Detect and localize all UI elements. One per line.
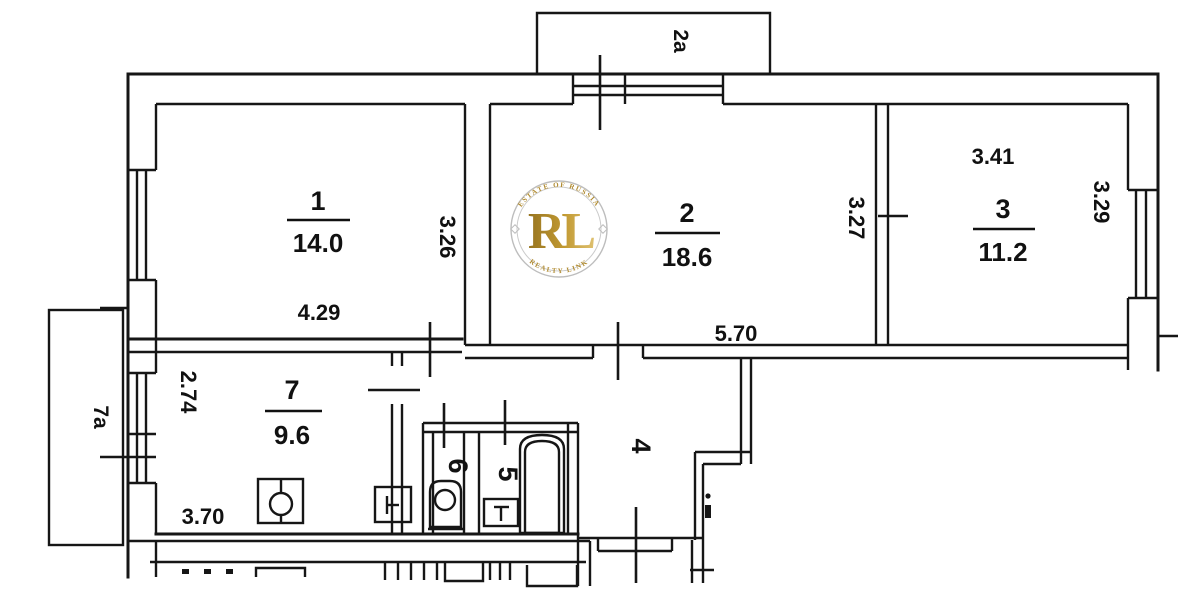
windows: [100, 55, 1158, 483]
balcony-2a: 2a: [537, 13, 770, 74]
floor-plan: 2a 7a: [0, 0, 1192, 600]
room-labels: 1 14.0 2 18.6 3 11.2 7 9.6 4 5 6: [265, 186, 1035, 482]
room-1-number: 1: [310, 186, 325, 216]
dim-room2-width: 5.70: [715, 321, 758, 346]
dim-room1-width: 4.29: [298, 300, 341, 325]
room-3-area: 11.2: [978, 237, 1027, 267]
watermark-initials: RL: [528, 203, 595, 260]
closet-door-mark: [705, 505, 711, 518]
dim-room7-depth: 2.74: [176, 371, 201, 415]
bathtub-icon: [520, 435, 564, 533]
balcony-7a-label: 7a: [89, 405, 112, 429]
room1-window: [128, 170, 156, 280]
room-1-label: 1 14.0: [287, 186, 350, 258]
stove-icon: [258, 479, 303, 523]
doors: [368, 322, 711, 583]
dim-room3-width: 3.41: [972, 144, 1015, 169]
interior-walls: [128, 104, 1128, 540]
room-3-number: 3: [995, 194, 1010, 224]
dim-room7-width: 3.70: [182, 504, 225, 529]
room-2-area: 18.6: [662, 242, 713, 272]
room-7-number: 7: [284, 375, 299, 405]
room-4-number: 4: [626, 438, 656, 453]
room-7-area: 9.6: [274, 420, 310, 450]
bottom-walls: [128, 534, 714, 586]
room-1-area: 14.0: [293, 228, 344, 258]
dim-room3-depth: 3.29: [1089, 181, 1114, 224]
balcony-7a: 7a: [49, 310, 123, 545]
room2-window: [573, 55, 723, 130]
room-6-number: 6: [443, 458, 473, 473]
room-3-label: 3 11.2: [973, 194, 1035, 267]
floor-plan-drawing: 2a 7a: [0, 0, 1192, 600]
watermark: ESTATE OF RUSSIA REALTY LINK RL: [511, 181, 607, 277]
room-7-label: 7 9.6: [265, 375, 322, 450]
room-2-number: 2: [679, 198, 694, 228]
washbasin-icon: [484, 499, 518, 526]
room-2-label: 2 18.6: [655, 198, 720, 272]
closet-door-hinge: [705, 493, 710, 498]
room-5-number: 5: [493, 466, 523, 481]
room3-window: [1128, 190, 1158, 298]
dimension-ticks: [100, 216, 1178, 336]
dim-room2-depth: 3.27: [844, 197, 869, 240]
balcony-2a-label: 2a: [669, 29, 692, 53]
dim-room1-depth: 3.26: [435, 216, 460, 259]
